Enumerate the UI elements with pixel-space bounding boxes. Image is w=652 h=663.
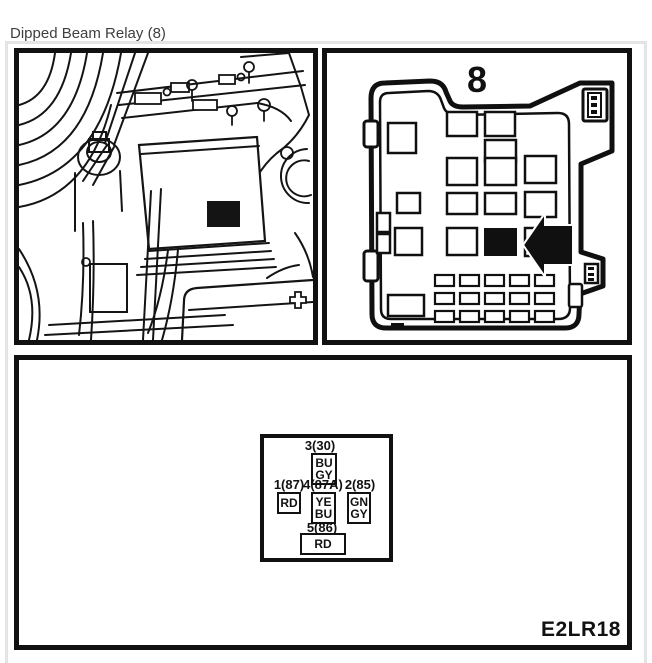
relay-pin-diagram: 3(30) BU GY 1(87) 4(87A) 2(85) RD YE BU … — [260, 434, 393, 562]
pin-1-label: 1(87) — [272, 477, 306, 492]
pin-diagram-panel: 3(30) BU GY 1(87) 4(87A) 2(85) RD YE BU … — [14, 355, 632, 650]
pin-2-wire-box: GN GY — [347, 492, 371, 524]
bottom-notch — [391, 323, 404, 330]
manual-page: Dipped Beam Relay (8) — [0, 0, 652, 663]
strut-tubes — [83, 53, 148, 185]
relay-box-diagram: 8 — [327, 53, 627, 340]
wire-color: RD — [302, 538, 344, 550]
wheel-arch-arcs — [19, 53, 121, 207]
relay-location-marker — [207, 201, 240, 227]
diagram-code: E2LR18 — [541, 618, 621, 642]
pin-1-wire-box: RD — [277, 492, 301, 514]
pin-2-label: 2(85) — [343, 477, 377, 492]
engine-bay-illustration — [19, 53, 313, 340]
battery-plus-icon — [290, 292, 306, 308]
engine-bay-location-panel — [14, 48, 318, 345]
dipped-beam-relay-marker — [484, 228, 517, 256]
battery — [182, 280, 313, 340]
wire-color: GY — [349, 508, 369, 520]
relay-box-panel: 8 — [322, 48, 632, 345]
relay-number-label: 8 — [467, 59, 487, 100]
pin-5-wire-box: RD — [300, 533, 346, 555]
pin-4-label: 4(87A) — [302, 477, 344, 492]
hoses — [117, 71, 305, 121]
wire-color: RD — [279, 497, 299, 509]
pin-3-label: 3(30) — [280, 438, 360, 453]
fuse-rows — [435, 275, 554, 322]
wire-color: BU — [313, 508, 334, 520]
page-title: Dipped Beam Relay (8) — [10, 25, 166, 42]
